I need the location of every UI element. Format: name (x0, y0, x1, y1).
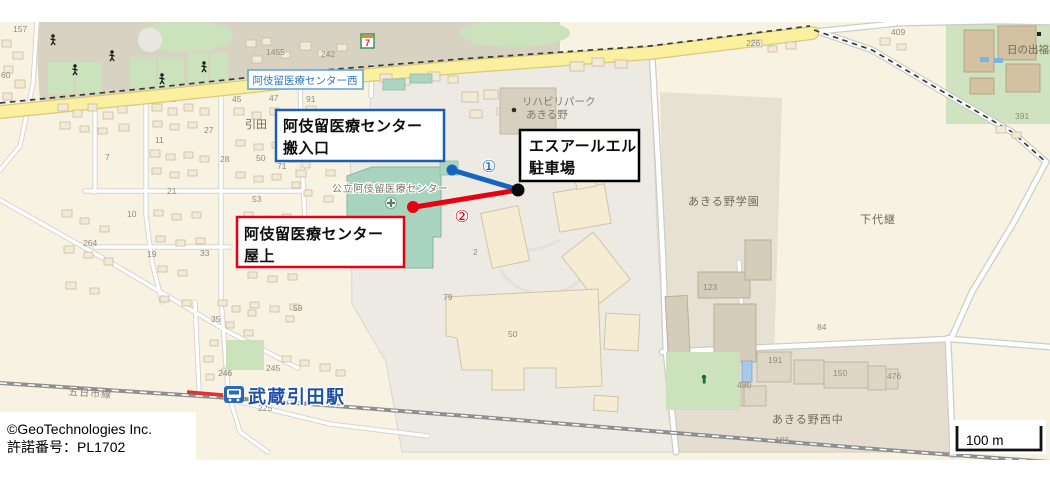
station-label: 武蔵引田駅 (248, 387, 346, 407)
house (292, 182, 300, 188)
house (272, 174, 281, 180)
house (13, 52, 23, 59)
map-label: 123 (703, 282, 717, 292)
annotation-line: 阿伎留医療センター (244, 225, 384, 243)
map-label: 50 (508, 329, 518, 339)
map-label: 50 (256, 153, 266, 163)
house (254, 144, 263, 150)
house (880, 38, 890, 45)
map-label: 11 (155, 135, 164, 145)
house (1012, 132, 1021, 138)
map-label: 409 (891, 27, 905, 37)
map-label: 191 (768, 355, 782, 365)
house (786, 42, 796, 49)
annotation-line: 駐車場 (529, 159, 576, 177)
seven-eleven-icon: 7 (361, 34, 374, 48)
map-label: 日の出福祉園 (1007, 43, 1050, 56)
station-park-square (226, 340, 264, 370)
map-label: 71 (277, 161, 287, 171)
map-label: 157 (13, 24, 27, 34)
house (248, 272, 257, 278)
house (119, 124, 129, 131)
house (90, 288, 99, 294)
house (166, 154, 175, 160)
house (156, 236, 165, 242)
house (184, 152, 193, 158)
map-label: 10 (127, 209, 137, 219)
annotation-line: エスアールエル (529, 138, 637, 155)
house (252, 112, 261, 119)
house (2, 40, 11, 47)
map-label: あきる野西中 (772, 413, 844, 426)
map-label: 150 (833, 368, 847, 378)
house (188, 122, 197, 128)
house (302, 162, 310, 168)
map-label: 476 (887, 371, 901, 381)
house (236, 140, 245, 146)
park-monument-icon (702, 375, 706, 379)
copyright-line-1: ©GeoTechnologies Inc. (7, 421, 152, 437)
map-label: 7 (105, 152, 110, 162)
route-2-start-dot (407, 201, 419, 213)
house (226, 322, 234, 328)
house (244, 330, 253, 336)
house (3, 93, 12, 100)
house (570, 62, 584, 71)
house (300, 360, 309, 366)
route-2-badge: ② (455, 207, 470, 226)
house (252, 56, 262, 63)
annotation-loading-entrance-box: 阿伎留医療センター 搬入口 (276, 110, 444, 161)
house (470, 110, 482, 118)
annotation-rooftop-box: 阿伎留医療センター 屋上 (237, 217, 404, 267)
map-label: 21 (167, 186, 177, 196)
house (262, 38, 271, 45)
house (176, 240, 185, 246)
house (154, 210, 163, 216)
house (15, 80, 25, 88)
route-1-start-dot (447, 165, 458, 176)
house (337, 44, 347, 51)
house (172, 214, 181, 220)
map-label: 下代継 (860, 212, 896, 226)
map-label: 264 (83, 238, 97, 248)
map-label: 391 (1015, 111, 1029, 121)
house (100, 226, 109, 232)
house (192, 212, 201, 218)
map-label: 28 (220, 154, 230, 164)
house (336, 370, 345, 376)
map-label: リハビリパーク (522, 96, 596, 108)
route-end-dot (512, 184, 525, 197)
copyright-line-2: 許諾番号：PL1702 (7, 439, 125, 455)
house (250, 302, 259, 308)
annotation-line: 阿伎留医療センター (283, 117, 423, 135)
house (60, 122, 70, 129)
house (448, 76, 458, 83)
house (996, 126, 1006, 133)
map-label: 2 (473, 247, 478, 257)
map-label: 91 (306, 94, 316, 104)
map-label: 246 (218, 368, 232, 378)
map-label: 226 (746, 38, 760, 48)
house (103, 112, 113, 119)
house (282, 356, 291, 362)
rehab-park-dot (512, 108, 517, 113)
house (768, 46, 777, 52)
map-label: 1455 (266, 47, 285, 57)
house (254, 176, 263, 182)
house (196, 238, 205, 244)
map-label: あきる野学園 (688, 194, 760, 208)
map-label: 引田 (245, 117, 267, 131)
house (153, 121, 162, 127)
house (80, 218, 89, 224)
bus-stop-label: 阿伎留医療センター西 (248, 70, 363, 89)
house (84, 252, 93, 258)
house (170, 124, 179, 130)
hospital-icon (386, 198, 397, 209)
house (615, 60, 627, 68)
map-label: あきる野 (526, 109, 568, 121)
house (98, 128, 107, 134)
house (178, 270, 187, 276)
map-label: 245 (266, 363, 280, 373)
house (62, 210, 72, 217)
annotation-line: 屋上 (244, 248, 275, 265)
map-label: 45 (232, 94, 242, 104)
route-1-badge: ① (482, 157, 497, 176)
house (300, 42, 311, 50)
house (210, 340, 218, 346)
house (64, 246, 74, 253)
annotation-srl-parking-box: エスアールエル 駐車場 (520, 130, 639, 181)
house (232, 306, 240, 312)
house (204, 356, 213, 362)
house (324, 196, 333, 202)
map-label: 19 (147, 249, 157, 259)
house (58, 104, 68, 111)
annotation-line: 搬入口 (283, 139, 330, 157)
map-canvas[interactable]: 7 引田あきる野学園下代継あきる野西中日の出福祉園リハビリパークあきる野公立阿伎… (0, 0, 1050, 479)
house (304, 190, 312, 196)
map-label: 35 (211, 314, 221, 324)
seven-eleven-glyph: 7 (365, 38, 370, 48)
scale-bar: 100 m (950, 420, 1046, 454)
map-label: 242 (321, 49, 335, 59)
map-label: 186 (775, 435, 789, 445)
house (158, 266, 167, 272)
bus-stop-name: 阿伎留医療センター西 (253, 74, 358, 87)
house (462, 92, 478, 102)
house (296, 170, 306, 177)
house (320, 364, 330, 371)
map-label: 33 (200, 248, 210, 258)
map-label: 79 (443, 292, 453, 302)
house (592, 58, 604, 66)
house (246, 40, 256, 47)
copyright-notice: ©GeoTechnologies Inc. 許諾番号：PL1702 (0, 412, 196, 462)
poi-dot (1037, 32, 1041, 36)
station-icon (224, 386, 244, 403)
house (236, 172, 245, 178)
house (182, 300, 191, 306)
map-label: 27 (204, 125, 214, 135)
house (288, 274, 297, 280)
house (118, 106, 127, 113)
house (160, 296, 169, 302)
map-label: 公立阿伎留医療センター (332, 182, 449, 195)
house (248, 310, 256, 316)
house (234, 108, 244, 115)
bottom-margin (0, 460, 1050, 479)
house (66, 282, 76, 289)
house (218, 300, 227, 306)
house (897, 44, 906, 50)
house (188, 170, 197, 176)
house (80, 126, 89, 132)
map-label: 53 (252, 194, 262, 204)
house (152, 104, 162, 111)
house (88, 104, 97, 111)
house (326, 170, 335, 176)
house (184, 104, 193, 111)
house (484, 90, 498, 99)
map-label: 480 (737, 380, 751, 390)
map-label: 60 (1, 70, 11, 80)
house (206, 374, 214, 380)
house (152, 168, 161, 174)
house (150, 150, 160, 157)
house (168, 108, 177, 115)
house (270, 306, 279, 312)
house (73, 110, 82, 117)
map-label: 47 (269, 93, 279, 103)
house (286, 316, 294, 322)
map-label: 59 (293, 303, 303, 313)
house (104, 258, 113, 265)
house (268, 276, 277, 282)
house (200, 108, 209, 115)
house (170, 172, 179, 178)
map-label: 84 (817, 322, 827, 332)
scale-bar-label: 100 m (966, 433, 1004, 448)
pool (742, 361, 752, 382)
top-margin (0, 0, 1050, 22)
house (200, 156, 209, 162)
